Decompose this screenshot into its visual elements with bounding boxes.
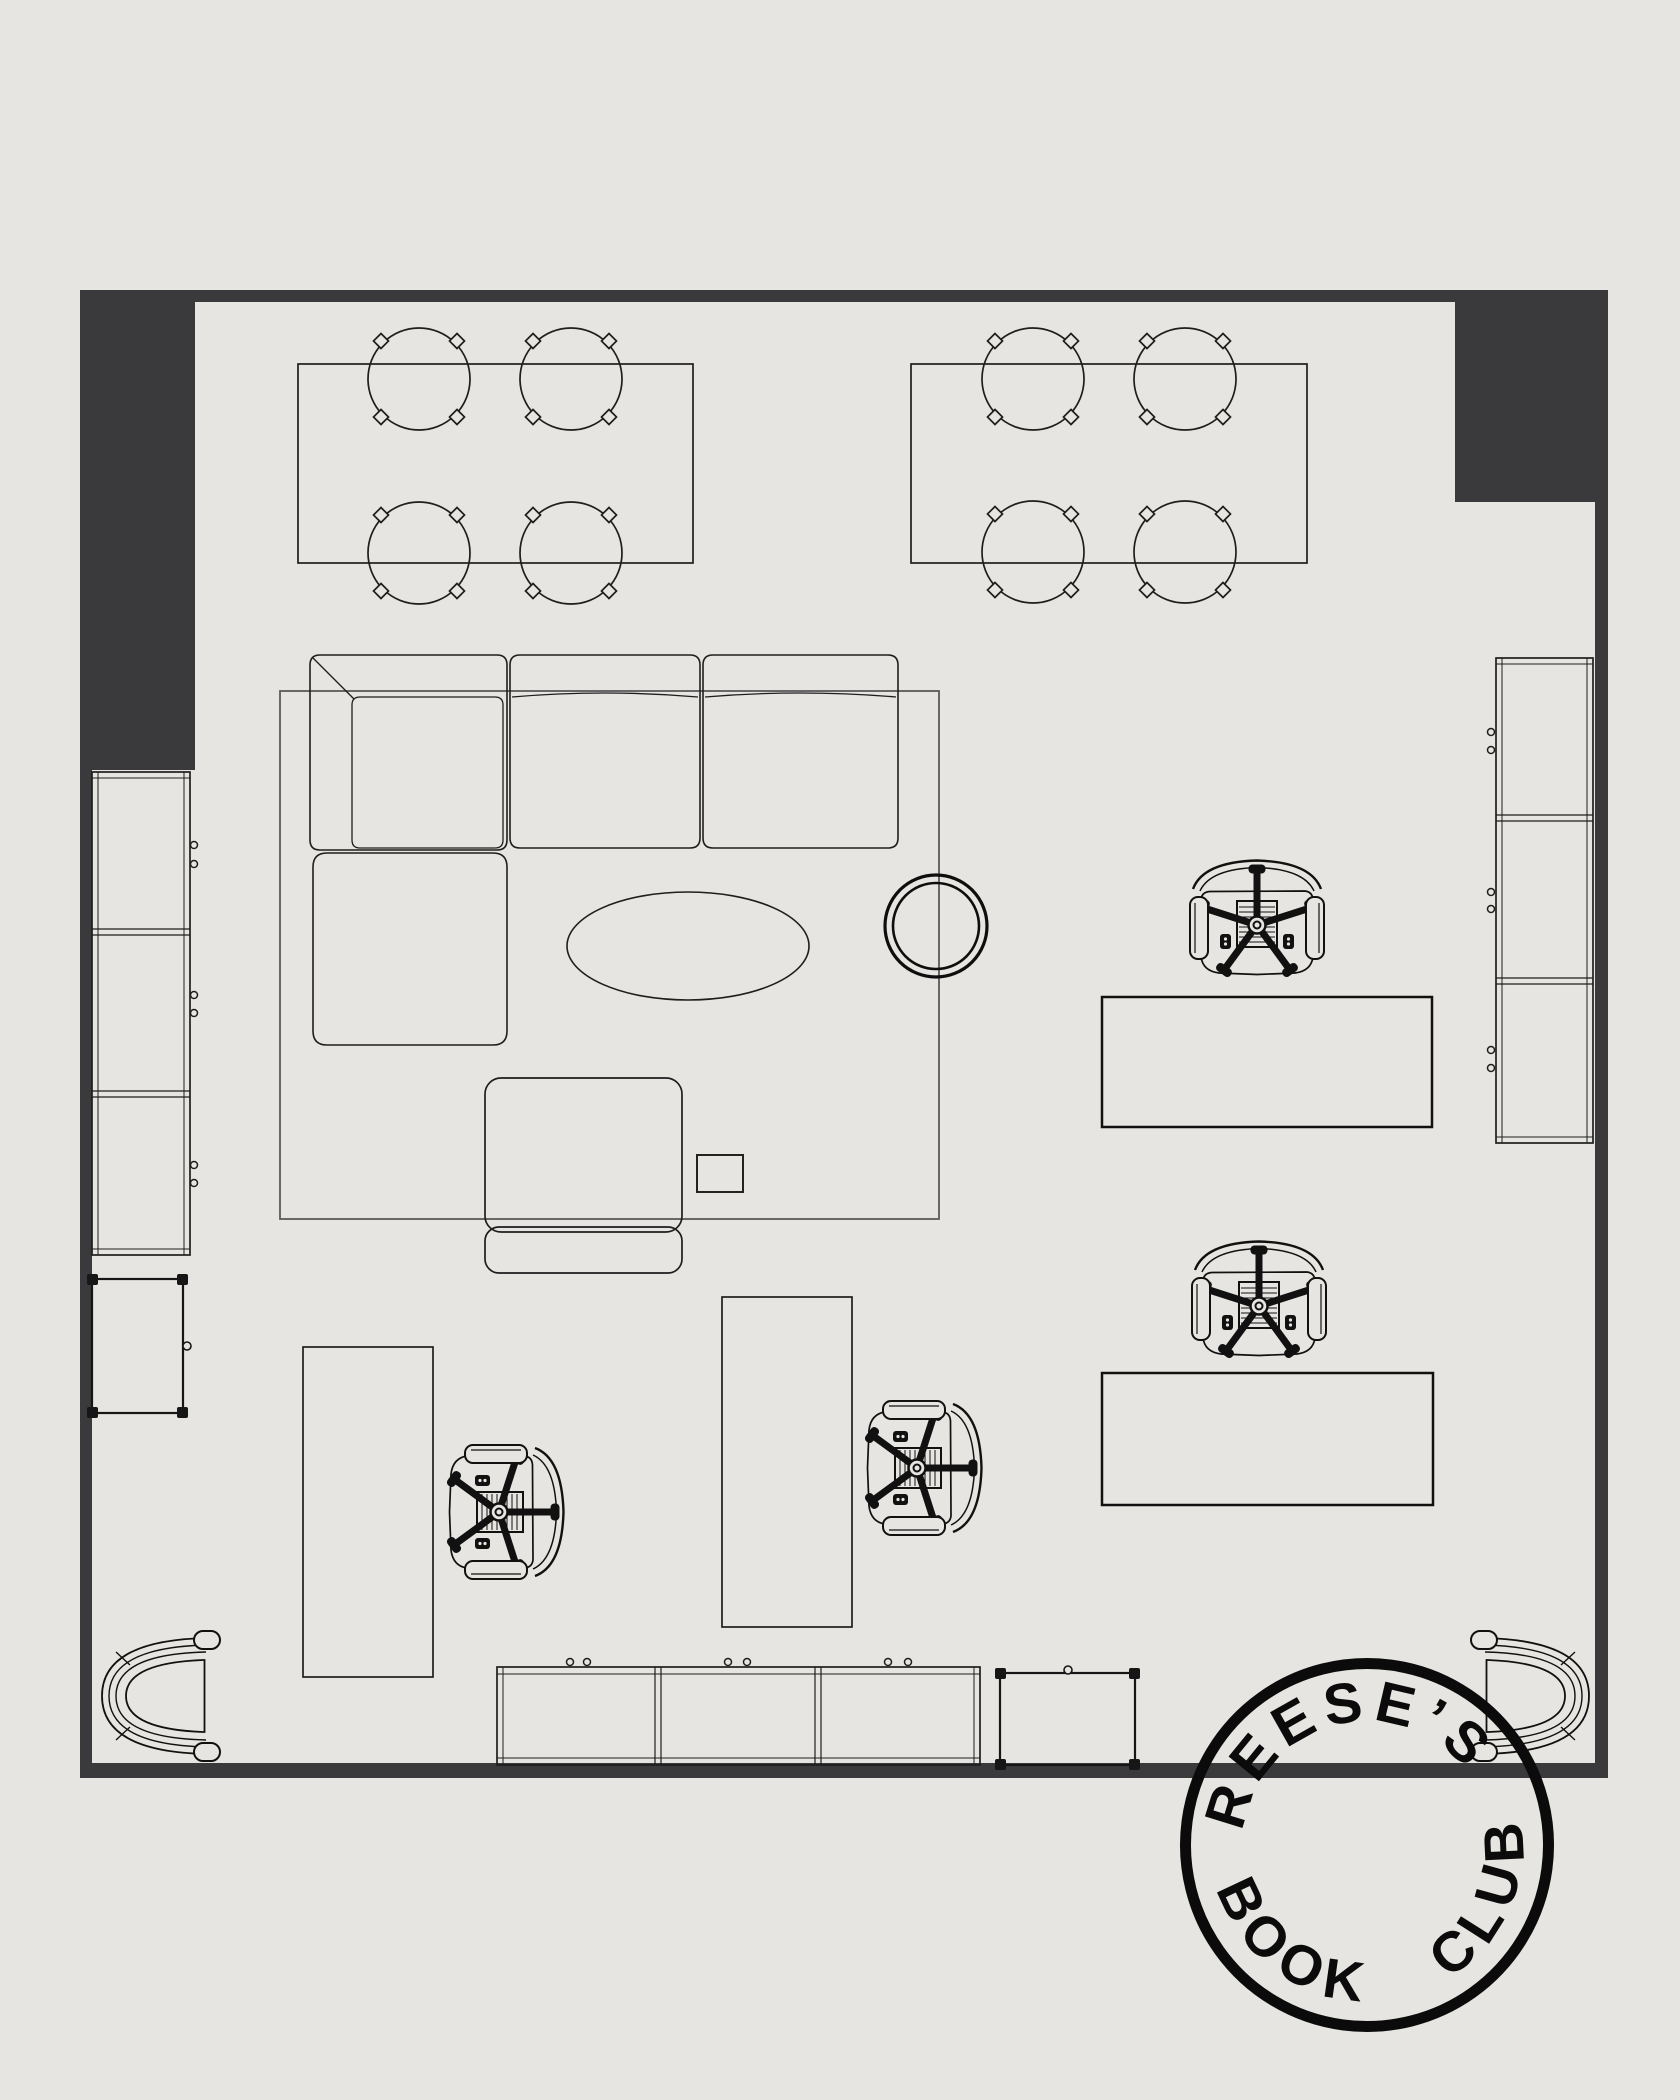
wall-column-top-left: [80, 290, 195, 770]
page-background: [0, 0, 1680, 2100]
floor-plan-page: REESE’S BOOK CLUB: [0, 0, 1680, 2100]
wall-column-top-right: [1455, 290, 1608, 502]
floor-plan-drawing: REESE’S BOOK CLUB: [0, 0, 1680, 2100]
wall-top: [80, 290, 1608, 302]
wall-right: [1595, 290, 1608, 1778]
